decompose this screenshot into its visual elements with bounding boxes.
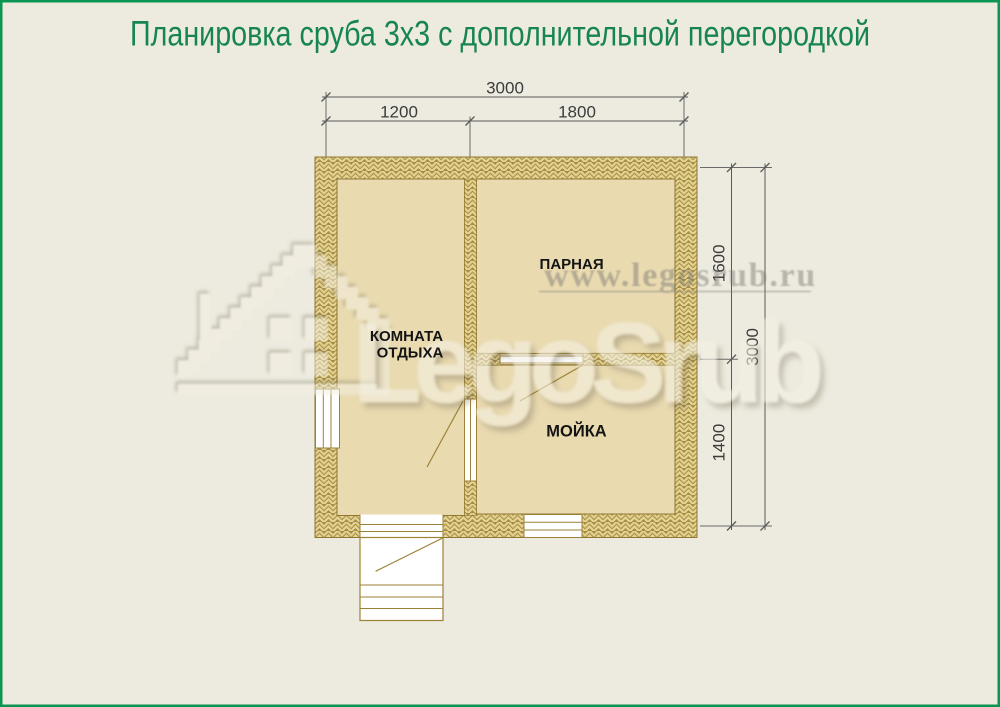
svg-text:ПАРНАЯ: ПАРНАЯ — [540, 256, 604, 273]
svg-text:МОЙКА: МОЙКА — [546, 422, 607, 441]
svg-text:1200: 1200 — [380, 103, 418, 122]
svg-text:Планировка сруба 3х3 с дополни: Планировка сруба 3х3 с дополнительной пе… — [130, 14, 870, 53]
svg-text:1800: 1800 — [558, 103, 596, 122]
svg-text:КОМНАТА: КОМНАТА — [370, 328, 443, 345]
svg-text:3000: 3000 — [486, 79, 524, 98]
svg-text:LegoSrub: LegoSrub — [352, 300, 820, 427]
svg-text:1400: 1400 — [710, 424, 729, 462]
svg-text:ОТДЫХА: ОТДЫХА — [377, 345, 444, 362]
